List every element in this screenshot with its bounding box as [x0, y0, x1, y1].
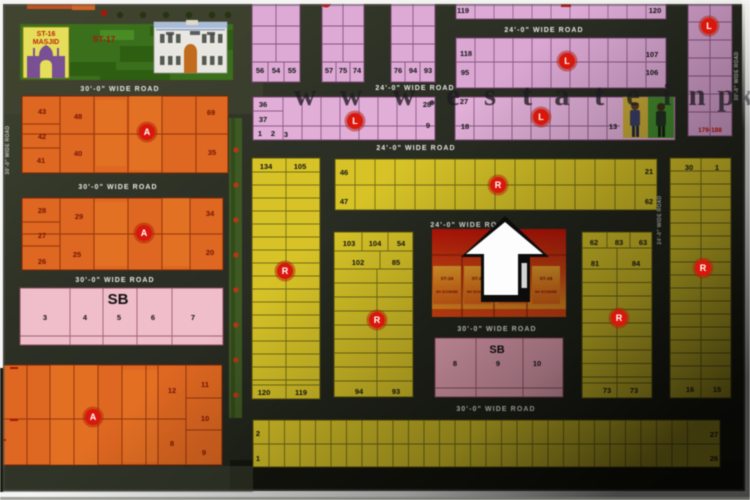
svg-text:n: n: [688, 77, 705, 112]
svg-text:p: p: [717, 77, 734, 112]
svg-text:w: w: [294, 77, 317, 112]
svg-text:R: R: [282, 266, 289, 276]
svg-text:R: R: [700, 263, 707, 273]
svg-text:w: w: [340, 77, 363, 112]
svg-text:s: s: [484, 77, 496, 112]
svg-text:A: A: [90, 412, 97, 422]
svg-text:a: a: [554, 77, 570, 112]
svg-text:i: i: [663, 77, 672, 112]
svg-text:L: L: [706, 21, 712, 31]
svg-text:e: e: [446, 77, 460, 112]
svg-text:L: L: [564, 56, 570, 66]
svg-text:.: .: [428, 77, 436, 112]
svg-text:e: e: [626, 77, 640, 112]
svg-text:A: A: [144, 127, 151, 137]
svg-text:R: R: [495, 180, 502, 190]
svg-text:L: L: [538, 112, 544, 122]
svg-text:L: L: [352, 116, 358, 126]
svg-text:R: R: [374, 315, 381, 325]
svg-text:t: t: [522, 77, 533, 112]
svg-text:w: w: [393, 77, 416, 112]
svg-text:A: A: [141, 228, 148, 238]
svg-text:R: R: [616, 313, 623, 323]
svg-text:t: t: [594, 77, 605, 112]
